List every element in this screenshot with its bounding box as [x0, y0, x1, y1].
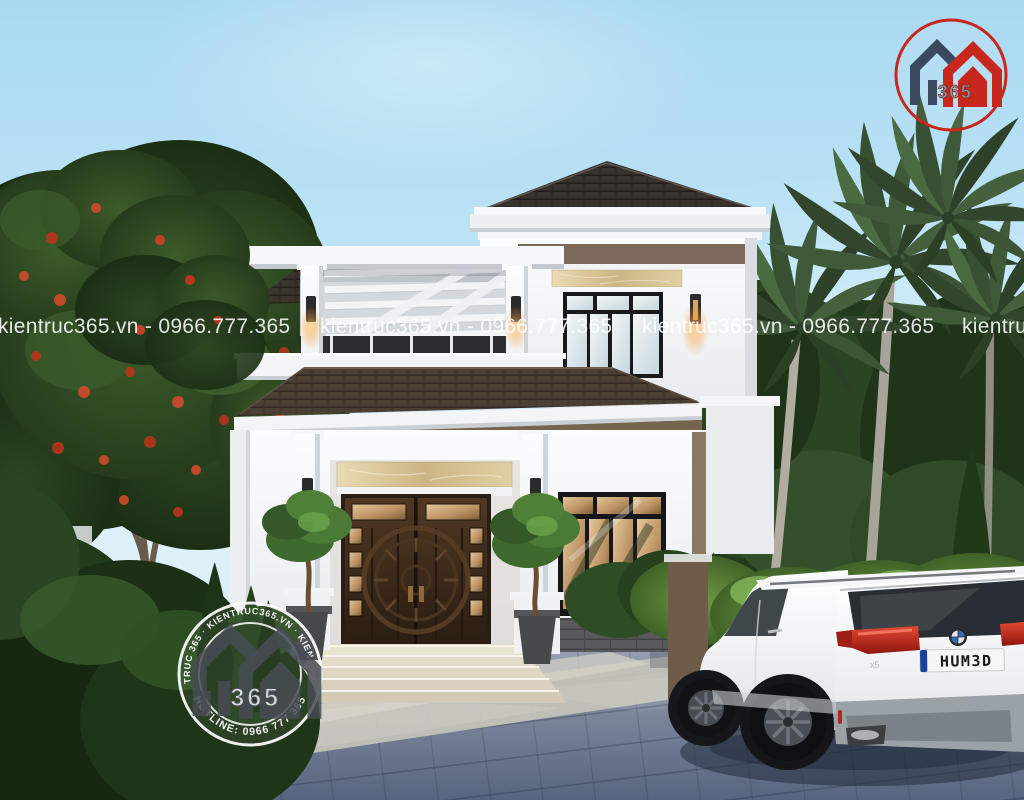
upper-fascia	[470, 214, 770, 230]
wheel-rear	[740, 674, 836, 770]
right-wing-wall	[706, 404, 774, 554]
bmw-roundel-icon	[949, 628, 967, 646]
front-door	[341, 494, 491, 649]
architectural-rendering: HUM3D x5 kientruc365.vn - 0966.777.365 k…	[0, 0, 1024, 800]
watermark-text: kientruc365.vn - 0966.777.365	[320, 315, 612, 339]
main-roof	[479, 161, 761, 210]
logo-number: 365	[938, 82, 973, 102]
watermark-text: kientruc365.vn - 0966.777.365	[0, 315, 290, 339]
watermark-text: kientruc365.vn - 0966.777.365	[642, 315, 934, 339]
license-plate: HUM3D	[920, 649, 1004, 672]
watermark-text: kientruc365.vn - 0966.777.365	[962, 315, 1024, 339]
marble-transom-door	[337, 462, 512, 487]
stamp-number: 365	[230, 684, 280, 712]
watermark-stamp: KIEN TRUC 365 · KIENTRUC365.VN · KIEN TR…	[139, 563, 361, 785]
model-badge: x5	[870, 660, 880, 670]
marble-transom-upper	[552, 270, 682, 287]
wheel-front	[668, 670, 744, 746]
brand-logo: 365	[886, 10, 1016, 140]
license-plate-text: HUM3D	[940, 652, 993, 671]
taillight-right	[1000, 622, 1024, 646]
